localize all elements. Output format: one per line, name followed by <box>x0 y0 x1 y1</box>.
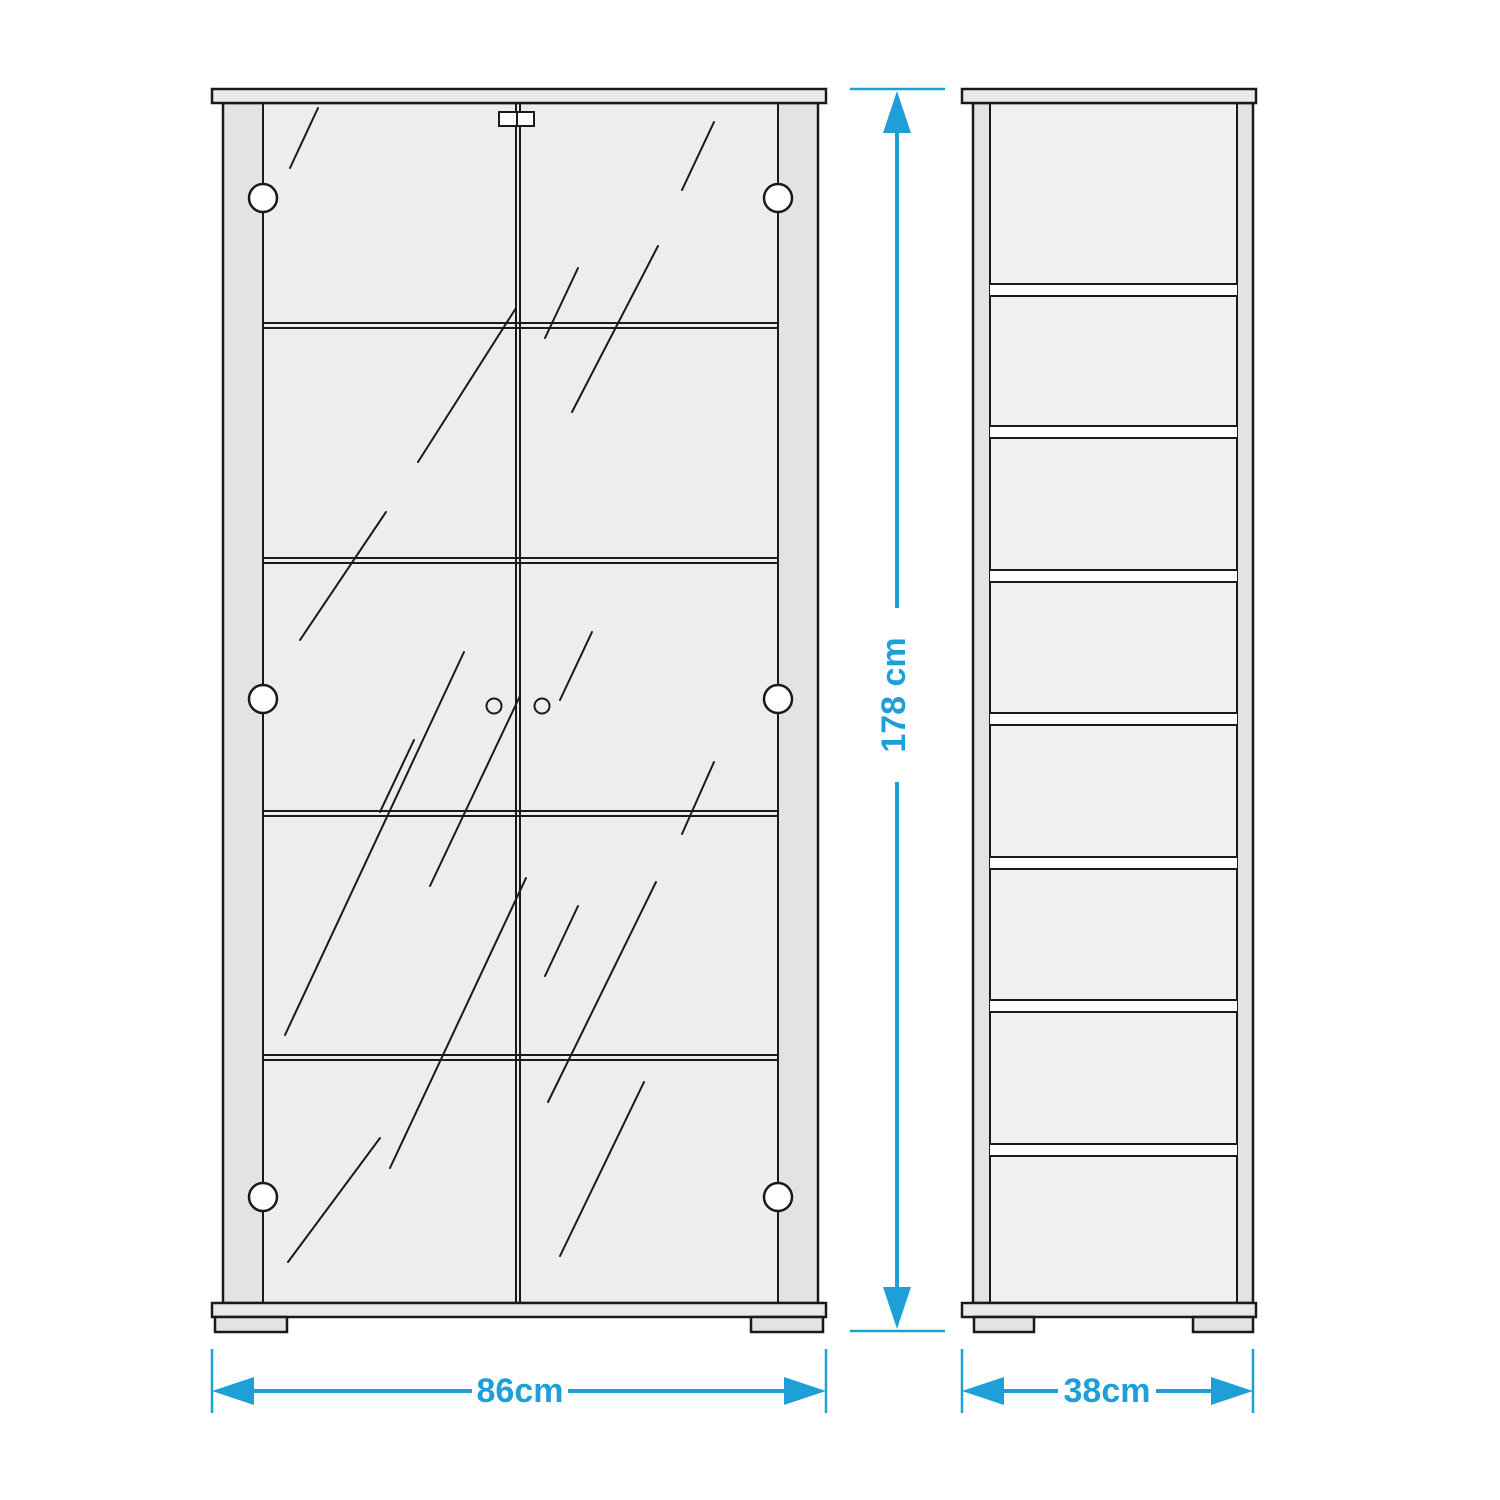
front-plinth <box>212 1303 826 1317</box>
hinge-pin <box>249 1183 277 1211</box>
height-dimension-label: 178 cm <box>875 637 913 752</box>
hinge-pin <box>764 1183 792 1211</box>
side-left-foot <box>974 1317 1034 1332</box>
door-knob <box>487 699 502 714</box>
dimension-depth: 38cm <box>962 1349 1253 1413</box>
shelf-edge <box>990 713 1237 725</box>
arrowhead-left-icon <box>962 1377 1004 1405</box>
arrowhead-left-icon <box>212 1377 254 1405</box>
shelf-edge <box>990 426 1237 438</box>
dimension-drawing: 86cm 178 cm 38cm <box>0 0 1500 1500</box>
arrowhead-right-icon <box>784 1377 826 1405</box>
hinge-pin <box>249 184 277 212</box>
dimension-width: 86cm <box>212 1349 826 1413</box>
depth-dimension-label: 38cm <box>1064 1372 1151 1410</box>
side-view <box>962 89 1256 1332</box>
dimension-height: 178 cm <box>850 89 945 1331</box>
front-door-latch <box>499 112 534 126</box>
front-right-foot <box>751 1317 823 1332</box>
front-top-panel <box>212 89 826 103</box>
hinge-pin <box>764 685 792 713</box>
front-left-foot <box>215 1317 287 1332</box>
side-right-foot <box>1193 1317 1253 1332</box>
shelf-edge <box>990 1144 1237 1156</box>
width-dimension-label: 86cm <box>477 1372 564 1410</box>
arrowhead-down-icon <box>883 1287 911 1329</box>
side-top-panel <box>962 89 1256 103</box>
cabinet-diagram-svg: 86cm 178 cm 38cm <box>0 0 1500 1500</box>
side-plinth <box>962 1303 1256 1317</box>
shelf-edge <box>990 1000 1237 1012</box>
arrowhead-right-icon <box>1211 1377 1253 1405</box>
hinge-pin <box>249 685 277 713</box>
shelf-edge <box>990 857 1237 869</box>
shelf-edge <box>990 284 1237 296</box>
hinge-pin <box>764 184 792 212</box>
arrowhead-up-icon <box>883 91 911 133</box>
shelf-edge <box>990 570 1237 582</box>
front-view <box>212 89 826 1332</box>
door-knob <box>535 699 550 714</box>
